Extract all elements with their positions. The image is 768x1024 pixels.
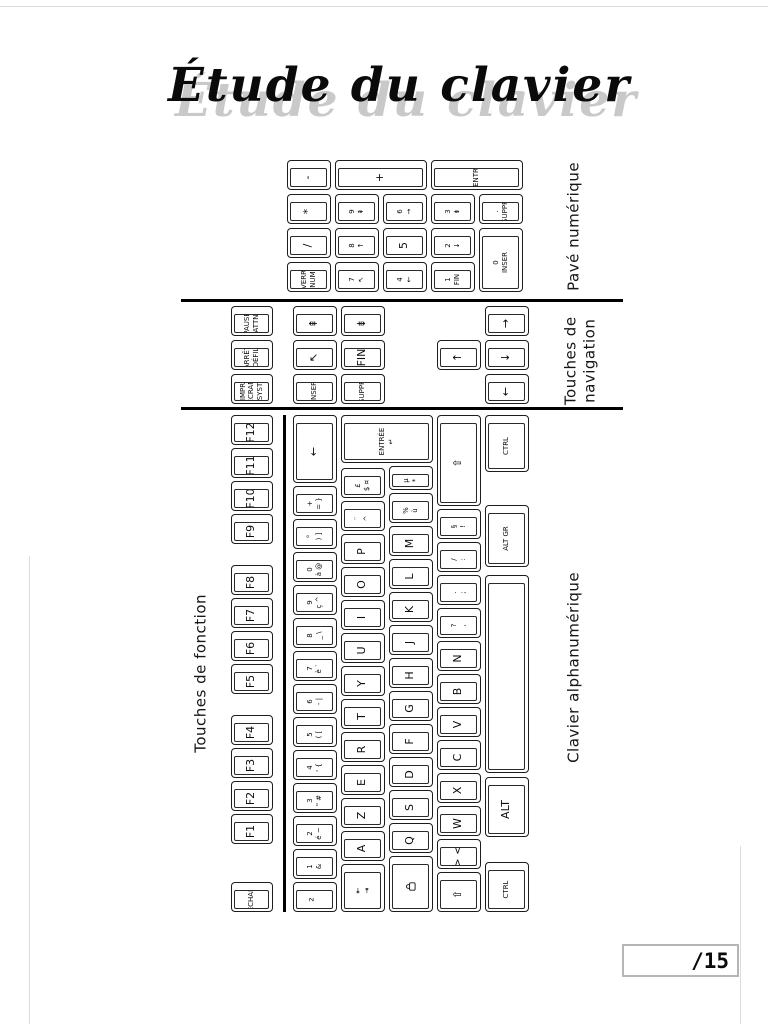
key-q: Q <box>389 823 433 853</box>
section-label-touches-fonction: Touches de fonction <box>192 593 211 753</box>
key-ctrl-left-cap: CTRL <box>488 870 525 909</box>
key-echap-cap: ÉCHAP <box>234 890 269 909</box>
key-num-4: 4← <box>383 262 427 292</box>
score-value: /15 <box>691 949 729 973</box>
key-o-cap: O <box>344 575 381 594</box>
keyboard-diagram: ÉCHAPF1F2F3F4F5F6F7F8F9F10F11F12²1&2é ~3… <box>225 160 543 912</box>
key-f10-cap: F10 <box>234 489 269 508</box>
key-7: 7è ` <box>293 651 337 681</box>
key-num-divide: / <box>287 228 331 258</box>
key-f12-cap: F12 <box>234 423 269 442</box>
key-e-cap: E <box>344 773 381 792</box>
key-a: A <box>341 831 385 861</box>
key-space <box>485 575 529 773</box>
key-num-3-cap: 3⇟ <box>434 202 471 221</box>
key-num-suppr: .SUPPR <box>479 194 523 224</box>
key-fin: FIN <box>341 340 385 370</box>
key-b-cap: B <box>440 682 477 701</box>
key-arrow-right: → <box>485 306 529 336</box>
key-verr-maj-cap <box>392 864 429 909</box>
key-m-cap: M <box>392 534 429 553</box>
key-p: P <box>341 534 385 564</box>
key-num-1-cap: 1FIN <box>434 270 471 289</box>
key-origine-cap: ↖ <box>296 348 333 367</box>
key-f1: F1 <box>231 814 273 844</box>
key-degree-cap: °) ] <box>296 527 333 546</box>
key-f7: F7 <box>231 598 273 628</box>
key-num-7: 7↖ <box>335 262 379 292</box>
key-shift-left-cap: ⇧ <box>440 880 477 909</box>
key-r-cap: R <box>344 740 381 759</box>
key-ctrl-right-cap: CTRL <box>488 423 525 469</box>
key-j: J <box>389 625 433 655</box>
key-f8-cap: F8 <box>234 573 269 592</box>
key-num-entr: ENTR <box>431 160 523 190</box>
key-entree-cap: ENTRÉE↵ <box>344 423 429 460</box>
key-colon: /: <box>437 542 481 572</box>
key-t: T <box>341 699 385 729</box>
key-e: E <box>341 765 385 795</box>
divider-function-row <box>283 415 286 912</box>
padlock-icon <box>405 881 416 892</box>
key-l: L <box>389 559 433 589</box>
key-6-cap: 6- | <box>296 692 333 711</box>
key-h-cap: H <box>392 666 429 685</box>
key-1: 1& <box>293 849 337 879</box>
key-i-cap: I <box>344 608 381 627</box>
key-page-prec-cap: ⇞ <box>296 314 333 333</box>
key-num-6-cap: 6→ <box>386 202 423 221</box>
key-f6-cap: F6 <box>234 639 269 658</box>
key-percent: %ù <box>389 493 433 523</box>
key-dollar: £$ ¤ <box>341 468 385 498</box>
key-num-8-cap: 8↑ <box>338 236 375 255</box>
key-arrow-left: ← <box>485 374 529 404</box>
key-m: M <box>389 526 433 556</box>
key-n-cap: N <box>440 649 477 668</box>
key-num-8: 8↑ <box>335 228 379 258</box>
key-less-greater-cap: > < <box>440 847 477 866</box>
key-verr-num: VERRNUM <box>287 262 331 292</box>
key-ctrl-left: CTRL <box>485 862 529 912</box>
key-f2-cap: F2 <box>234 789 269 808</box>
key-circumflex: ¨^ <box>341 501 385 531</box>
page-edge-top <box>0 6 768 7</box>
key-9-cap: 9ç ^ <box>296 593 333 612</box>
key-num-9: 9⇞ <box>335 194 379 224</box>
key-page-suiv: ⇟ <box>341 306 385 336</box>
key-3: 3" # <box>293 783 337 813</box>
key-f6: F6 <box>231 631 273 661</box>
key-comma-cap: ?, <box>440 616 477 635</box>
key-k: K <box>389 592 433 622</box>
key-f9: F9 <box>231 514 273 544</box>
key-ctrl-right: CTRL <box>485 415 529 472</box>
key-num-6: 6→ <box>383 194 427 224</box>
key-f12: F12 <box>231 415 273 445</box>
key-8: 8_ \ <box>293 618 337 648</box>
key-arrow-down: ↓ <box>485 340 529 370</box>
key-v-cap: V <box>440 715 477 734</box>
key-colon-cap: /: <box>440 550 477 569</box>
key-g: G <box>389 691 433 721</box>
key-arrow-right-cap: → <box>488 314 525 333</box>
key-tab-cap: ⇤⇥ <box>344 872 381 909</box>
key-num-2-cap: 2↓ <box>434 236 471 255</box>
score-box: /15 <box>622 944 739 977</box>
key-s: S <box>389 790 433 820</box>
key-2-cap: 2é ~ <box>296 824 333 843</box>
key-y-cap: Y <box>344 674 381 693</box>
key-i: I <box>341 600 385 630</box>
key-page-prec: ⇞ <box>293 306 337 336</box>
key-impr-ecran: IMPRÉCRANSYST <box>231 374 273 404</box>
key-y: Y <box>341 666 385 696</box>
section-label-touches-navigation: Touches de navigation <box>561 305 599 417</box>
key-k-cap: K <box>392 600 429 619</box>
section-label-text: Touches de <box>561 305 580 417</box>
key-num-minus-cap: - <box>290 168 327 187</box>
key-verr-maj <box>389 856 433 912</box>
key-g-cap: G <box>392 699 429 718</box>
key-circumflex-cap: ¨^ <box>344 509 381 528</box>
key-num-0: 0INSER <box>479 228 523 292</box>
key-num-multiply: * <box>287 194 331 224</box>
key-3-cap: 3" # <box>296 791 333 810</box>
key-r: R <box>341 732 385 762</box>
key-4: 4' { <box>293 750 337 780</box>
key-altgr-cap: ALT GR <box>488 513 525 564</box>
key-s-cap: S <box>392 798 429 817</box>
key-t-cap: T <box>344 707 381 726</box>
key-num-5-cap: 5 <box>386 236 423 255</box>
key-5: 5( [ <box>293 717 337 747</box>
key-echap: ÉCHAP <box>231 882 273 912</box>
key-num-0-cap: 0INSER <box>482 236 519 289</box>
key-f4: F4 <box>231 715 273 745</box>
key-num-plus: + <box>335 160 427 190</box>
key-num-9-cap: 9⇞ <box>338 202 375 221</box>
key-alt-cap: ALT <box>488 785 525 834</box>
key-superscript2-cap: ² <box>296 890 333 909</box>
key-exclamation: §! <box>437 509 481 539</box>
key-num-1: 1FIN <box>431 262 475 292</box>
key-z-cap: Z <box>344 806 381 825</box>
key-4-cap: 4' { <box>296 758 333 777</box>
key-page-suiv-cap: ⇟ <box>344 314 381 333</box>
key-q-cap: Q <box>392 831 429 850</box>
key-c-cap: C <box>440 748 477 767</box>
key-o: O <box>341 567 385 597</box>
key-semicolon: .; <box>437 575 481 605</box>
key-degree: °) ] <box>293 519 337 549</box>
key-z: Z <box>341 798 385 828</box>
key-inser: INSER <box>293 374 337 404</box>
key-f2: F2 <box>231 781 273 811</box>
key-v: V <box>437 707 481 737</box>
key-entree: ENTRÉE↵ <box>341 415 433 463</box>
key-plus-equal: += } <box>293 486 337 516</box>
key-f11: F11 <box>231 448 273 478</box>
key-f10: F10 <box>231 481 273 511</box>
key-f: F <box>389 724 433 754</box>
key-u: U <box>341 633 385 663</box>
key-comma: ?, <box>437 608 481 638</box>
key-asterisk-cap: µ* <box>392 474 429 487</box>
key-f3: F3 <box>231 748 273 778</box>
key-0-cap: 0à @ <box>296 560 333 579</box>
key-n: N <box>437 641 481 671</box>
key-x: X <box>437 773 481 803</box>
key-pause-cap: PAUSEATTN <box>234 314 269 333</box>
key-u-cap: U <box>344 641 381 660</box>
key-arret-defil-cap: ARRÊTDÉFIL <box>234 348 269 367</box>
key-6: 6- | <box>293 684 337 714</box>
key-1-cap: 1& <box>296 857 333 876</box>
key-percent-cap: %ù <box>392 501 429 520</box>
key-f11-cap: F11 <box>234 456 269 475</box>
key-x-cap: X <box>440 781 477 800</box>
key-d: D <box>389 757 433 787</box>
page-title: Étude du clavier <box>168 58 588 113</box>
key-w-cap: W <box>440 814 477 833</box>
key-num-multiply-cap: * <box>290 202 327 221</box>
key-num-entr-cap: ENTR <box>434 168 519 187</box>
key-num-suppr-cap: .SUPPR <box>482 202 519 221</box>
key-f-cap: F <box>392 732 429 751</box>
section-label-text: Clavier alphanumérique <box>565 572 583 763</box>
key-arrow-down-cap: ↓ <box>488 348 525 367</box>
key-a-cap: A <box>344 839 381 858</box>
key-num-7-cap: 7↖ <box>338 270 375 289</box>
page-edge-right <box>740 846 741 1024</box>
key-f1-cap: F1 <box>234 822 269 841</box>
key-c: C <box>437 740 481 770</box>
key-f3-cap: F3 <box>234 756 269 775</box>
key-shift-left: ⇧ <box>437 872 481 912</box>
key-f9-cap: F9 <box>234 522 269 541</box>
key-f4-cap: F4 <box>234 723 269 742</box>
key-pause: PAUSEATTN <box>231 306 273 336</box>
page-edge-left <box>29 556 30 1024</box>
key-verr-num-cap: VERRNUM <box>290 270 327 289</box>
key-alt: ALT <box>485 777 529 837</box>
key-less-greater: > < <box>437 839 481 869</box>
key-f5: F5 <box>231 664 273 694</box>
key-8-cap: 8_ \ <box>296 626 333 645</box>
key-impr-ecran-cap: IMPRÉCRANSYST <box>234 382 269 401</box>
key-7-cap: 7è ` <box>296 659 333 678</box>
key-num-minus: - <box>287 160 331 190</box>
key-h: H <box>389 658 433 688</box>
section-label-clavier-alphanumerique: Clavier alphanumérique <box>565 570 584 764</box>
key-inser-cap: INSER <box>296 382 333 401</box>
key-9: 9ç ^ <box>293 585 337 615</box>
key-exclamation-cap: §! <box>440 517 477 536</box>
key-asterisk: µ* <box>389 466 433 490</box>
key-p-cap: P <box>344 542 381 561</box>
key-w: W <box>437 806 481 836</box>
key-backspace: ← <box>293 415 337 483</box>
key-superscript2: ² <box>293 882 337 912</box>
key-num-plus-cap: + <box>338 168 423 187</box>
key-tab: ⇤⇥ <box>341 864 385 912</box>
key-num-2: 2↓ <box>431 228 475 258</box>
section-label-text: Touches de fonction <box>192 594 210 753</box>
key-b: B <box>437 674 481 704</box>
key-2: 2é ~ <box>293 816 337 846</box>
key-num-4-cap: 4← <box>386 270 423 289</box>
key-d-cap: D <box>392 765 429 784</box>
key-semicolon-cap: .; <box>440 583 477 602</box>
section-label-text: navigation <box>580 305 599 417</box>
key-num-3: 3⇟ <box>431 194 475 224</box>
key-suppr: SUPPR <box>341 374 385 404</box>
key-0: 0à @ <box>293 552 337 582</box>
key-shift-right: ⇧ <box>437 415 481 506</box>
key-f7-cap: F7 <box>234 606 269 625</box>
key-arrow-left-cap: ← <box>488 382 525 401</box>
key-f8: F8 <box>231 565 273 595</box>
key-dollar-cap: £$ ¤ <box>344 476 381 495</box>
key-arret-defil: ARRÊTDÉFIL <box>231 340 273 370</box>
key-num-5: 5 <box>383 228 427 258</box>
key-5-cap: 5( [ <box>296 725 333 744</box>
key-origine: ↖ <box>293 340 337 370</box>
key-altgr: ALT GR <box>485 505 529 567</box>
key-num-divide-cap: / <box>290 236 327 255</box>
key-arrow-up: ↑ <box>437 340 481 370</box>
section-label-text: Pavé numérique <box>565 162 583 291</box>
key-f5-cap: F5 <box>234 672 269 691</box>
key-j-cap: J <box>392 633 429 652</box>
key-suppr-cap: SUPPR <box>344 382 381 401</box>
key-backspace-cap: ← <box>296 423 333 480</box>
section-label-pave-numerique: Pavé numérique <box>565 146 584 306</box>
key-plus-equal-cap: += } <box>296 494 333 513</box>
key-arrow-up-cap: ↑ <box>440 348 477 367</box>
key-l-cap: L <box>392 567 429 586</box>
key-fin-cap: FIN <box>344 348 381 367</box>
key-space-cap <box>488 583 525 770</box>
key-shift-right-cap: ⇧ <box>440 423 477 503</box>
